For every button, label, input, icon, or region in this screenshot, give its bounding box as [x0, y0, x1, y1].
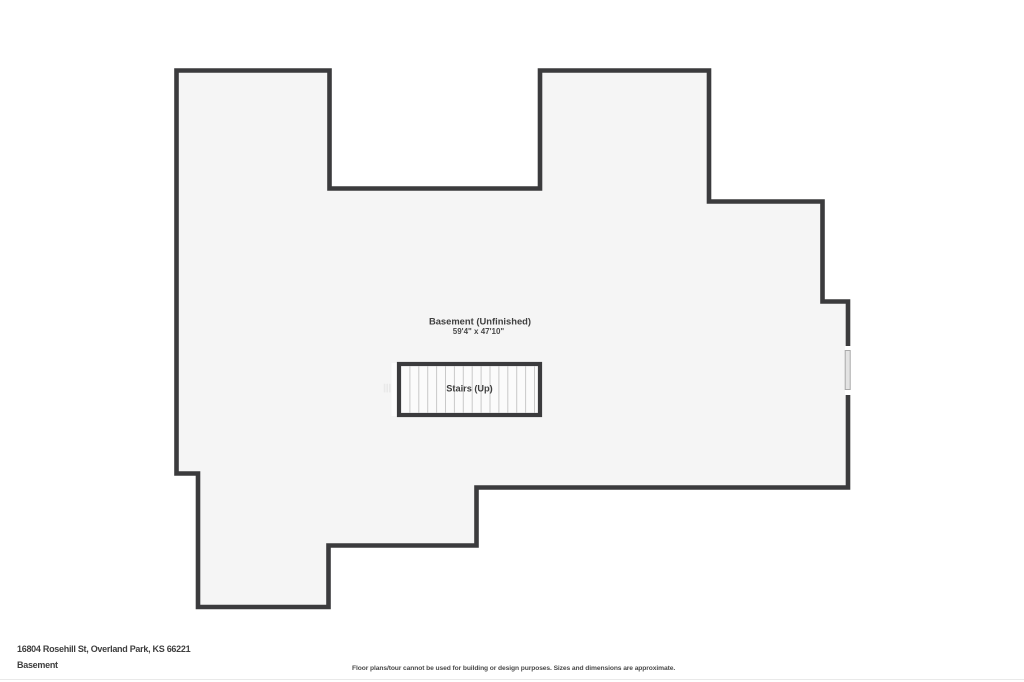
svg-text:Basement (Unfinished): Basement (Unfinished)	[429, 316, 531, 327]
svg-text:Stairs (Up): Stairs (Up)	[446, 384, 492, 394]
svg-text:59'4" x 47'10": 59'4" x 47'10"	[453, 327, 505, 336]
